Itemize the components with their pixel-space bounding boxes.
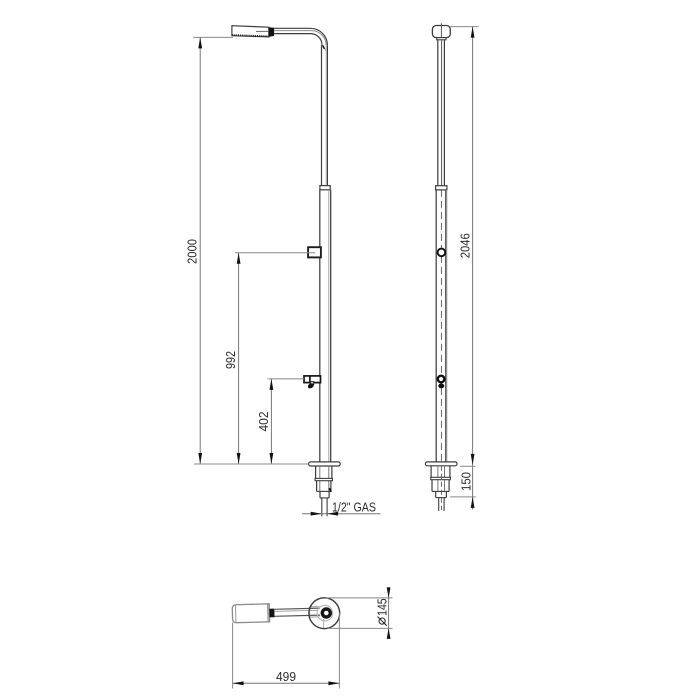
svg-text:2000: 2000	[184, 239, 199, 264]
svg-text:145: 145	[374, 598, 389, 616]
svg-text:1/2" GAS: 1/2" GAS	[332, 499, 376, 514]
svg-text:2046: 2046	[458, 233, 473, 258]
svg-text:499: 499	[276, 669, 296, 684]
svg-text:402: 402	[256, 412, 271, 432]
svg-text:150: 150	[458, 472, 473, 491]
svg-text:992: 992	[223, 351, 238, 369]
